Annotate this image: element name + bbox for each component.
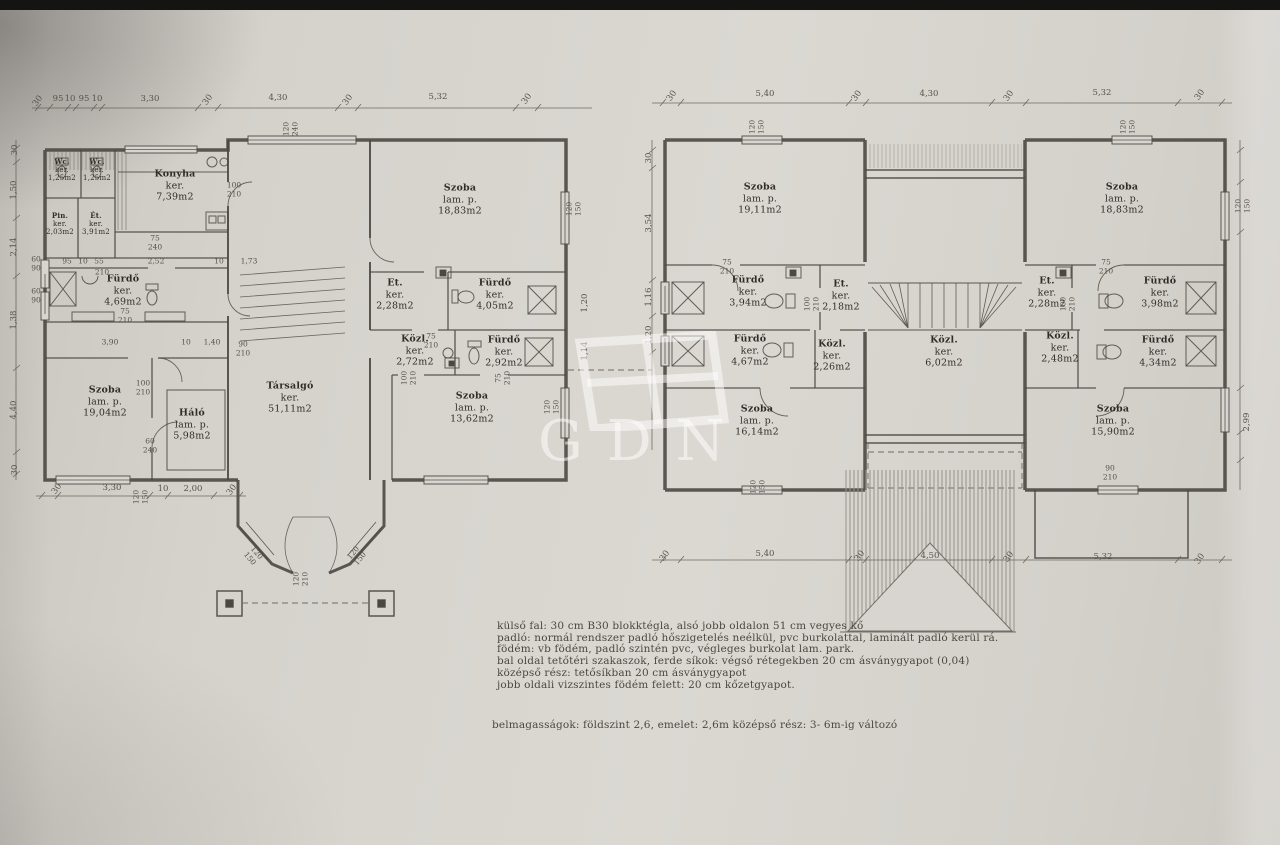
room-label: Et.ker.2,18m2 bbox=[822, 279, 859, 314]
window-size-tag: 120 150 bbox=[1234, 199, 1251, 213]
window-size-tag: 120 150 bbox=[748, 120, 765, 134]
room-label: Fürdőker.3,94m2 bbox=[729, 275, 766, 310]
note-line: középső rész: tetősíkban 20 cm ásványgya… bbox=[497, 668, 1117, 680]
ceiling-heights-note: belmagasságok: földszint 2,6, emelet: 2,… bbox=[492, 719, 897, 731]
room-label: Fürdőker.3,98m2 bbox=[1141, 276, 1178, 311]
scanned-floorplan-photo: Wc.ker.1,25m2 Wc.ker.1,25m2 Konyhaker.7,… bbox=[0, 0, 1280, 845]
door-size-tag: 75 210 bbox=[720, 258, 734, 275]
room-label: Közl.ker.2,48m2 bbox=[1041, 331, 1078, 366]
dimension-label: 5,40 bbox=[756, 549, 775, 559]
room-label: Szobalam. p.15,90m2 bbox=[1091, 404, 1135, 439]
dimension-label: 30 bbox=[1002, 550, 1016, 565]
room-label: Szobalam. p.16,14m2 bbox=[735, 404, 779, 439]
room-label: Fürdőker.4,34m2 bbox=[1139, 335, 1176, 370]
window-size-tag: 120 150 bbox=[749, 480, 766, 494]
dimension-label: 2,99 bbox=[1242, 413, 1252, 432]
dimension-label: 30 bbox=[850, 89, 864, 104]
dimension-label: 5,40 bbox=[756, 89, 775, 99]
window-size-tag: 120 150 bbox=[1119, 120, 1136, 134]
door-size-tag: 75 210 bbox=[1099, 258, 1113, 275]
door-size-tag: 100 210 bbox=[803, 297, 820, 311]
room-label: Szobalam. p.19,11m2 bbox=[738, 182, 782, 217]
note-line: jobb oldali vizszintes födém felett: 20 … bbox=[497, 680, 1117, 692]
dimension-label: 30 bbox=[1002, 89, 1016, 104]
dimension-label: 1,16 bbox=[644, 288, 654, 307]
construction-notes: külső fal: 30 cm B30 blokktégla, alsó jo… bbox=[497, 621, 1117, 691]
room-label: Szobalam. p.18,83m2 bbox=[1100, 182, 1144, 217]
room-label: Közl.ker.6,02m2 bbox=[925, 335, 962, 370]
dimension-label: 30 bbox=[853, 549, 867, 564]
note-line: külső fal: 30 cm B30 blokktégla, alsó jo… bbox=[497, 621, 1117, 633]
dimension-label: 30 bbox=[1193, 552, 1207, 567]
room-label: Fürdőker.4,67m2 bbox=[731, 334, 768, 369]
dimension-label: 5,32 bbox=[1093, 88, 1112, 98]
dimension-label: 30 bbox=[1193, 88, 1207, 103]
dimension-label: 30 bbox=[658, 549, 672, 564]
dimension-label: 30 bbox=[644, 153, 654, 164]
dimension-label: 4,30 bbox=[920, 89, 939, 99]
door-size-tag: 100 210 bbox=[1059, 297, 1076, 311]
dimension-label: 1,20 bbox=[644, 326, 654, 345]
dimension-label: 5,32 bbox=[1094, 552, 1113, 562]
room-label: Közl.ker.2,26m2 bbox=[813, 339, 850, 374]
dimension-label: 4,50 bbox=[921, 551, 940, 561]
dimension-label: 30 bbox=[665, 89, 679, 104]
dimension-label: 3,54 bbox=[644, 214, 654, 233]
door-size-tag: 90 210 bbox=[1103, 464, 1117, 481]
